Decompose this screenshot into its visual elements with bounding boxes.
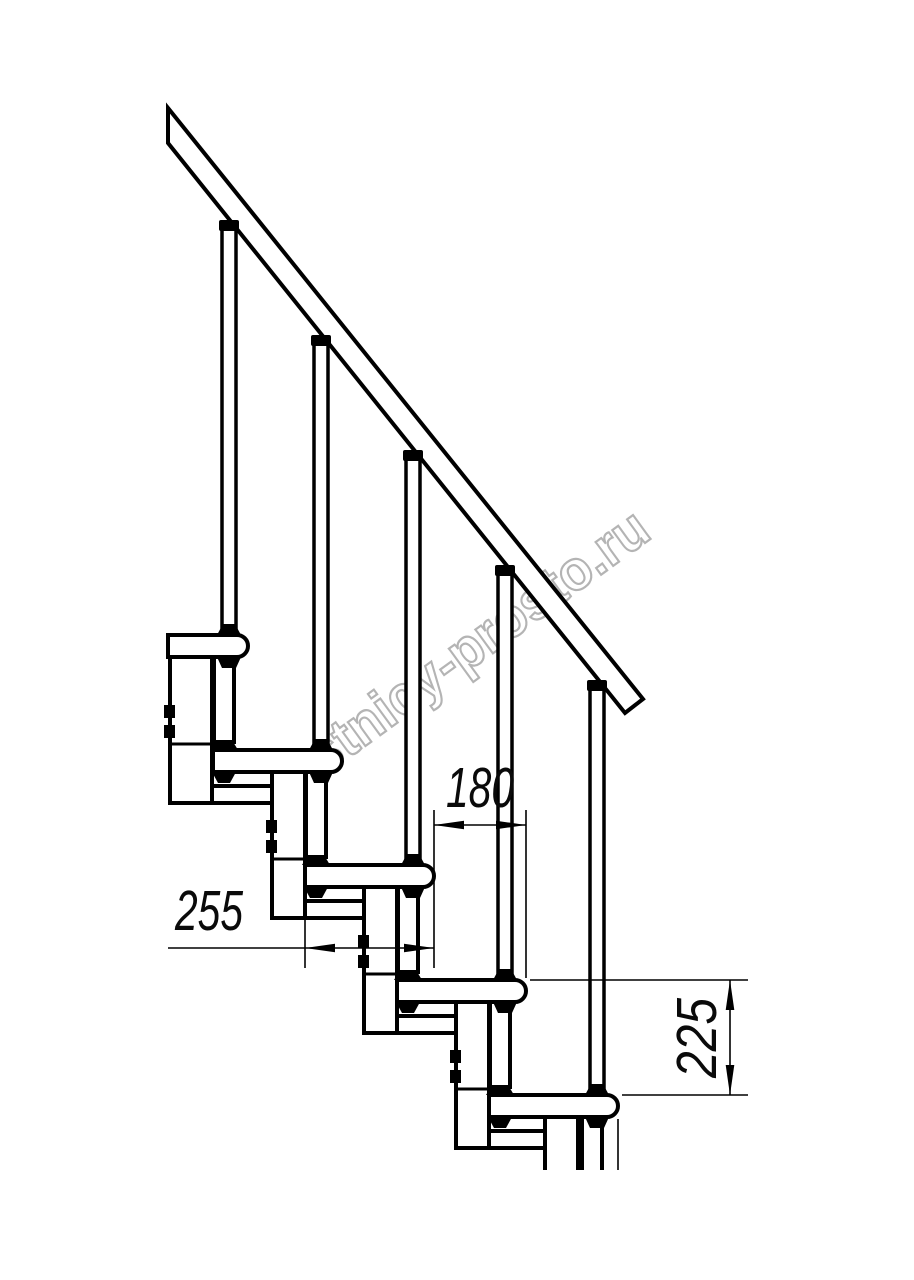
nut-icon [488, 1117, 512, 1128]
post-2 [306, 772, 326, 857]
clamp-bolt-icon [450, 1050, 461, 1063]
nut-icon [585, 1117, 609, 1128]
clamp-bolt-icon [164, 725, 175, 738]
dim-label-255: 255 [174, 879, 243, 943]
clamp-bolt-icon [358, 955, 369, 968]
baluster-1 [222, 228, 236, 635]
post-3 [398, 887, 418, 972]
baluster-collar-icon [495, 565, 515, 576]
baluster-collar-icon [219, 220, 239, 231]
tread-1 [168, 635, 248, 657]
tread-4 [397, 980, 526, 1002]
baluster-3 [406, 458, 420, 865]
tread-3 [305, 865, 434, 887]
tread-5 [489, 1095, 618, 1117]
nut-icon [212, 772, 236, 783]
staircase-technical-drawing: lestnicy-prosto.ru 18 [0, 0, 914, 1280]
baluster-2 [314, 343, 328, 750]
arrow-left-180 [434, 821, 464, 830]
clamp-bolt-icon [358, 935, 369, 948]
support-box-1 [170, 657, 212, 803]
post-1 [214, 657, 234, 742]
clamp-bolt-icon [266, 840, 277, 853]
baluster-collar-icon [587, 680, 607, 691]
clamp-bolt-icon [266, 820, 277, 833]
baluster-collar-icon [403, 450, 423, 461]
nut-icon [304, 887, 328, 898]
arrow-left-255 [305, 944, 335, 953]
drawing-canvas: lestnicy-prosto.ru 18 [0, 0, 914, 1280]
post-4 [490, 1002, 510, 1087]
clamp-bolt-icon [450, 1070, 461, 1083]
clamp-bolt-icon [164, 705, 175, 718]
dim-label-225: 225 [665, 998, 729, 1079]
tread-2 [213, 750, 342, 772]
nut-icon [396, 1002, 420, 1013]
dim-label-180: 180 [446, 756, 514, 820]
baluster-collar-icon [311, 335, 331, 346]
baluster-5 [590, 688, 604, 1095]
